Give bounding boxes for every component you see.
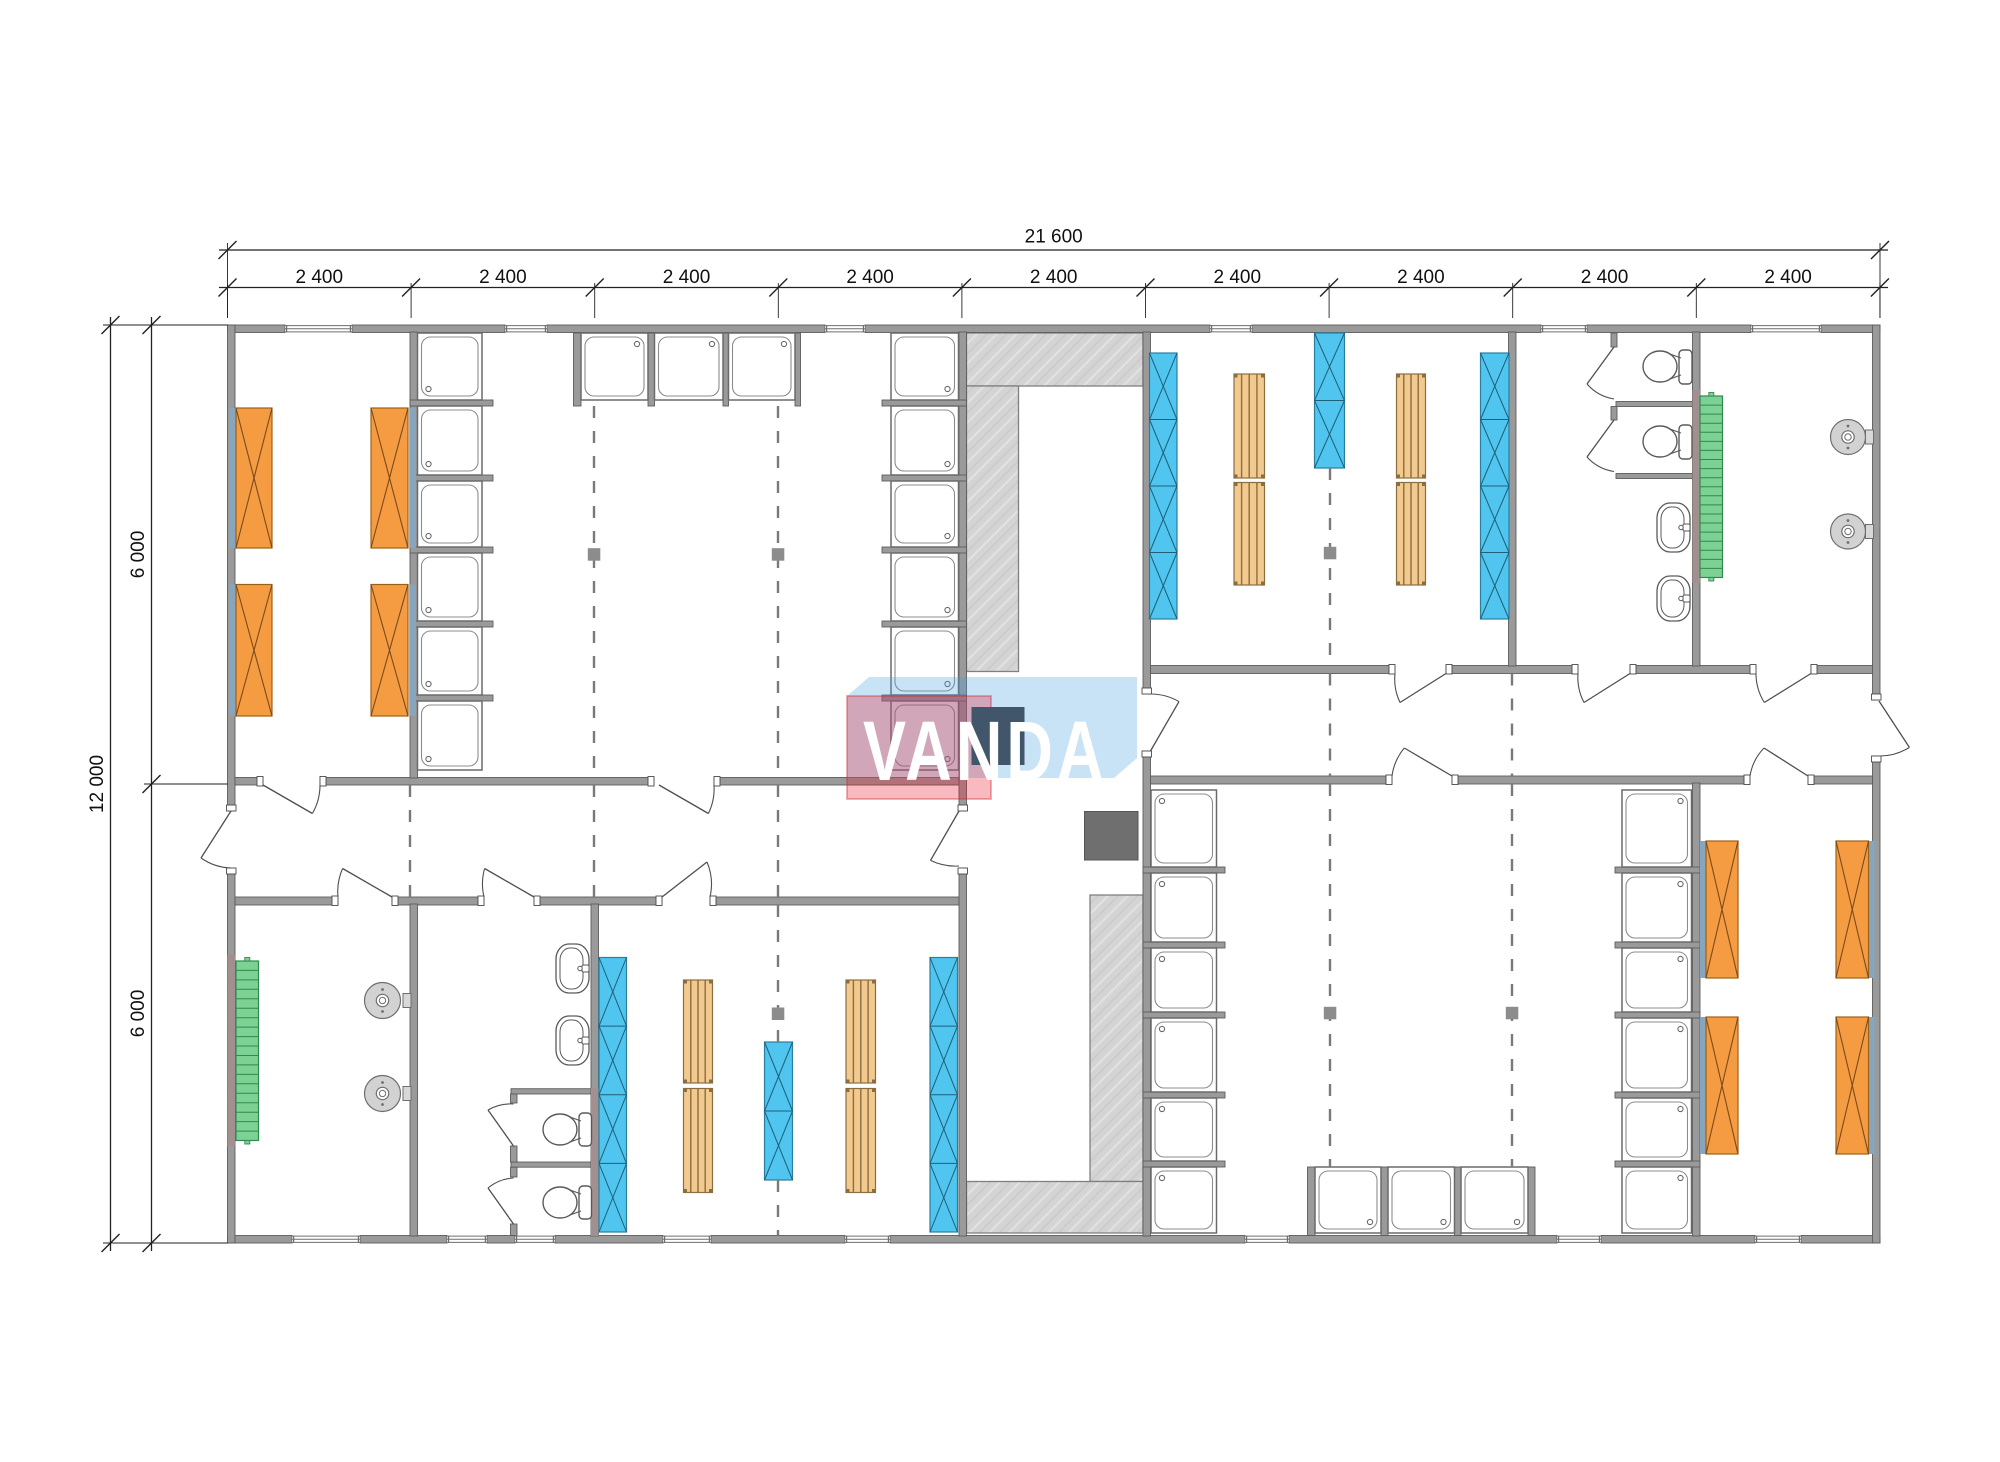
svg-text:21 600: 21 600	[1025, 227, 1083, 248]
svg-text:6 000: 6 000	[128, 990, 149, 1038]
svg-text:2 400: 2 400	[1214, 267, 1262, 288]
svg-text:2 400: 2 400	[846, 267, 894, 288]
svg-text:2 400: 2 400	[479, 267, 527, 288]
svg-text:2 400: 2 400	[296, 267, 344, 288]
svg-text:2 400: 2 400	[663, 267, 711, 288]
svg-text:VANDA: VANDA	[863, 704, 1107, 798]
svg-text:6 000: 6 000	[128, 531, 149, 579]
svg-text:12 000: 12 000	[87, 755, 108, 813]
svg-text:2 400: 2 400	[1581, 267, 1629, 288]
svg-text:2 400: 2 400	[1397, 267, 1445, 288]
svg-text:2 400: 2 400	[1030, 267, 1078, 288]
svg-text:2 400: 2 400	[1764, 267, 1812, 288]
